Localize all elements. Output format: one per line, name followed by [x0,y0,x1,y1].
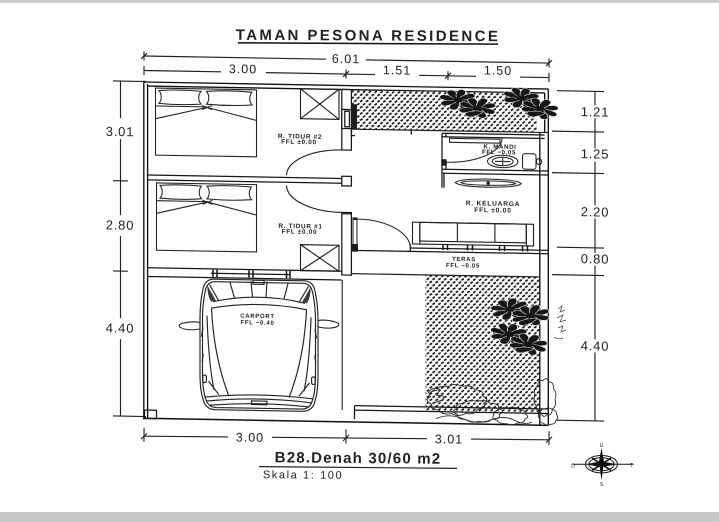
svg-text:Skala 1: 100: Skala 1: 100 [263,469,343,482]
svg-text:U: U [600,443,604,449]
svg-text:S: S [600,482,604,488]
svg-text:B28.Denah 30/60 m2: B28.Denah 30/60 m2 [275,449,442,467]
svg-text:T: T [630,463,633,469]
svg-text:3.00: 3.00 [236,431,264,445]
svg-text:D: D [571,464,575,470]
svg-text:3.01: 3.01 [435,432,463,446]
